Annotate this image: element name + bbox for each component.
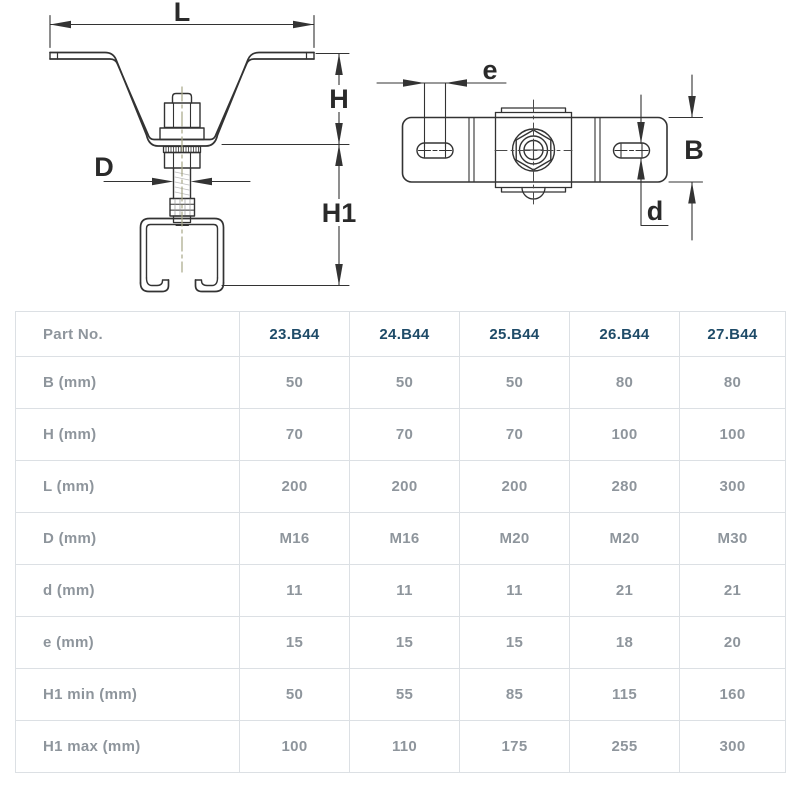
table-cell: 55 (350, 669, 460, 721)
table-cell: 11 (350, 565, 460, 617)
table-row-H1-max: H1 max (mm) 100 110 175 255 300 (16, 721, 786, 773)
table-cell: 70 (240, 409, 350, 461)
part-code: 25.B44 (460, 312, 570, 357)
table-cell: 70 (460, 409, 570, 461)
header-part-no: Part No. (16, 312, 240, 357)
slot-right (614, 143, 650, 158)
part-code: 24.B44 (350, 312, 460, 357)
spec-table-container: Part No. 23.B44 24.B44 25.B44 26.B44 27.… (15, 311, 785, 773)
table-row-L: L (mm) 200 200 200 280 300 (16, 461, 786, 513)
dim-label-H1: H1 (322, 198, 357, 228)
table-cell: 255 (570, 721, 680, 773)
table-cell: 200 (240, 461, 350, 513)
row-label: L (mm) (16, 461, 240, 513)
spec-table: Part No. 23.B44 24.B44 25.B44 26.B44 27.… (15, 311, 786, 773)
table-row-H: H (mm) 70 70 70 100 100 (16, 409, 786, 461)
table-cell: 200 (350, 461, 460, 513)
table-cell: 50 (240, 357, 350, 409)
table-cell: 175 (460, 721, 570, 773)
table-header-row: Part No. 23.B44 24.B44 25.B44 26.B44 27.… (16, 312, 786, 357)
dim-label-L: L (174, 0, 191, 27)
table-cell: 50 (350, 357, 460, 409)
table-cell: 21 (570, 565, 680, 617)
table-cell: 15 (350, 617, 460, 669)
table-cell: 11 (240, 565, 350, 617)
table-cell: 200 (460, 461, 570, 513)
table-cell: M16 (350, 513, 460, 565)
dim-label-D: D (94, 152, 114, 182)
table-row-D: D (mm) M16 M16 M20 M20 M30 (16, 513, 786, 565)
row-label: H1 max (mm) (16, 721, 240, 773)
table-cell: 11 (460, 565, 570, 617)
dim-label-H: H (329, 84, 349, 114)
row-label: B (mm) (16, 357, 240, 409)
table-cell: M20 (570, 513, 680, 565)
table-cell: 50 (240, 669, 350, 721)
part-code: 27.B44 (680, 312, 786, 357)
technical-drawing: L H H1 D (0, 0, 800, 310)
table-cell: 100 (240, 721, 350, 773)
table-cell: M30 (680, 513, 786, 565)
table-row-B: B (mm) 50 50 50 80 80 (16, 357, 786, 409)
top-view-centerlines (495, 100, 572, 206)
table-cell: M20 (460, 513, 570, 565)
row-label: H1 min (mm) (16, 669, 240, 721)
table-cell: 21 (680, 565, 786, 617)
table-row-H1-min: H1 min (mm) 50 55 85 115 160 (16, 669, 786, 721)
row-label: d (mm) (16, 565, 240, 617)
table-cell: 85 (460, 669, 570, 721)
row-label: D (mm) (16, 513, 240, 565)
table-row-e: e (mm) 15 15 15 18 20 (16, 617, 786, 669)
table-cell: 110 (350, 721, 460, 773)
table-cell: 15 (460, 617, 570, 669)
table-cell: M16 (240, 513, 350, 565)
table-cell: 18 (570, 617, 680, 669)
table-cell: 100 (570, 409, 680, 461)
table-cell: 160 (680, 669, 786, 721)
dim-label-d: d (647, 196, 664, 226)
table-cell: 20 (680, 617, 786, 669)
row-label: e (mm) (16, 617, 240, 669)
part-code: 23.B44 (240, 312, 350, 357)
dimension-D (104, 178, 250, 185)
page: L H H1 D (0, 0, 800, 800)
table-cell: 70 (350, 409, 460, 461)
slot-left (417, 143, 453, 158)
table-cell: 300 (680, 461, 786, 513)
part-code: 26.B44 (570, 312, 680, 357)
dim-label-B: B (684, 135, 704, 165)
table-cell: 300 (680, 721, 786, 773)
table-cell: 50 (460, 357, 570, 409)
table-row-d: d (mm) 11 11 11 21 21 (16, 565, 786, 617)
table-cell: 100 (680, 409, 786, 461)
table-cell: 80 (570, 357, 680, 409)
table-cell: 280 (570, 461, 680, 513)
table-cell: 115 (570, 669, 680, 721)
table-cell: 80 (680, 357, 786, 409)
table-cell: 15 (240, 617, 350, 669)
dim-label-e: e (482, 55, 497, 85)
dimension-e (377, 79, 506, 147)
row-label: H (mm) (16, 409, 240, 461)
